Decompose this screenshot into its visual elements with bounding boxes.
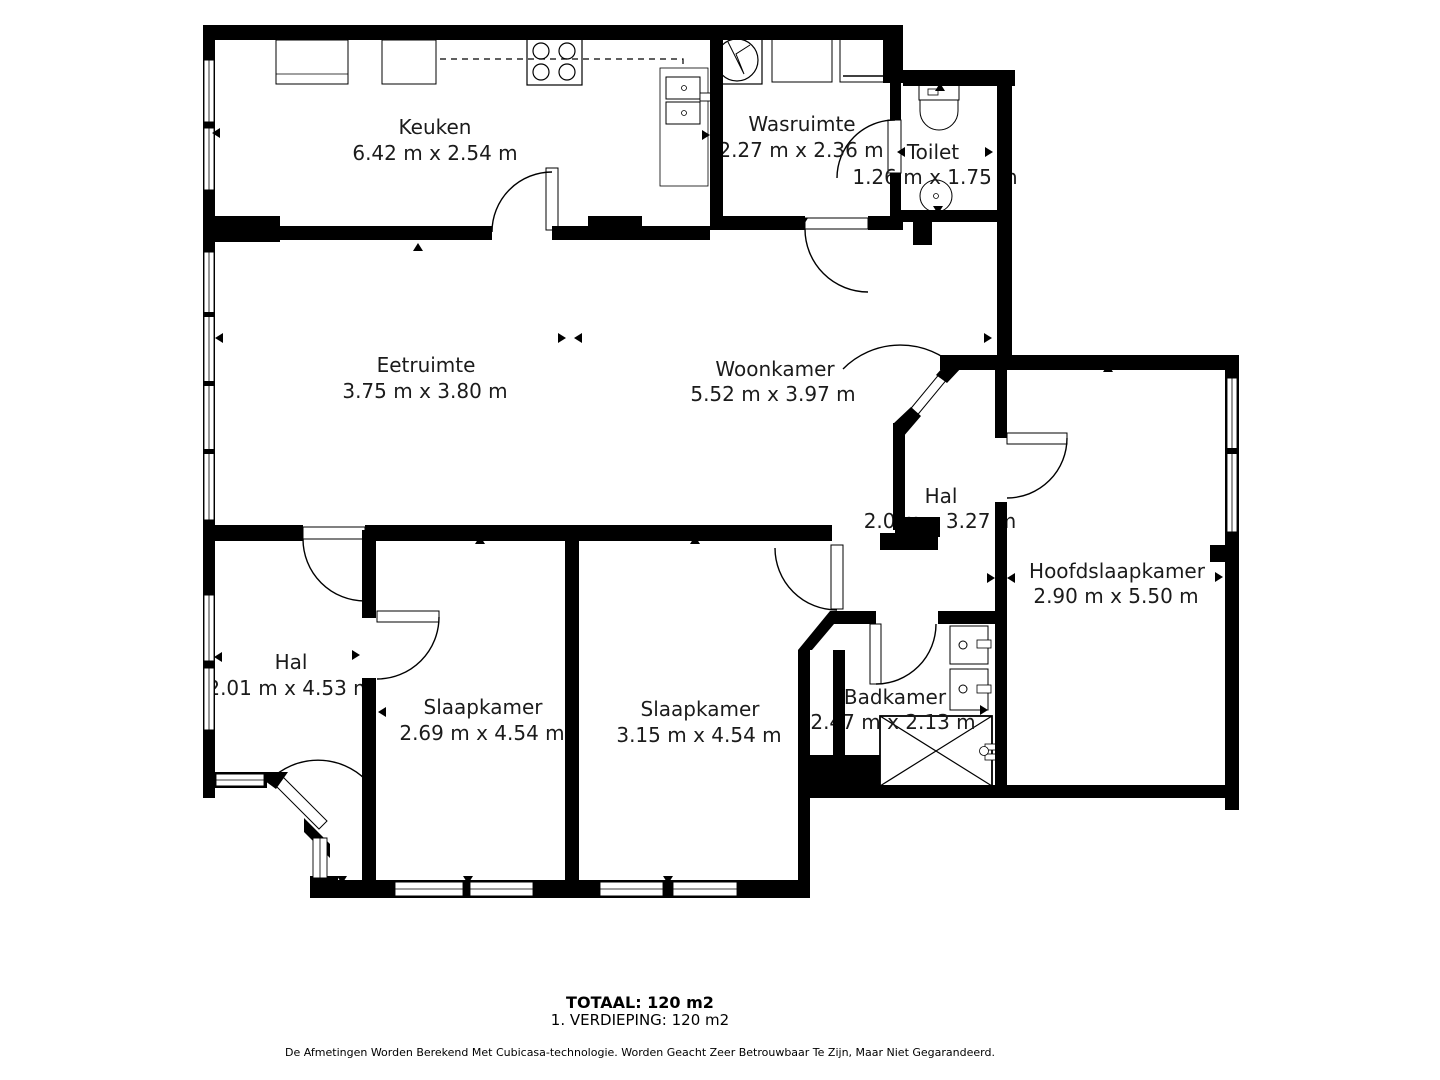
toilet-bowl <box>920 100 958 130</box>
footer: TOTAAL: 120 m2 1. VERDIEPING: 120 m2 De … <box>0 994 1280 1059</box>
stove-icon <box>527 37 582 85</box>
burner <box>559 64 575 80</box>
room-dims-slaapkamer-1: 2.69 m x 4.54 m <box>399 721 564 745</box>
shower-knob <box>980 747 989 756</box>
total-area-label: TOTAAL: 120 m2 <box>0 994 1280 1011</box>
cabinet <box>382 40 436 84</box>
room-dims-eetruimte: 3.75 m x 3.80 m <box>342 379 507 403</box>
room-label-toilet: Toilet <box>906 140 959 164</box>
room-label-hoofdslaapkamer: Hoofdslaapkamer <box>1029 559 1206 583</box>
room-dims-hal-onder: 2.01 m x 4.53 m <box>207 676 372 700</box>
room-label-keuken: Keuken <box>399 115 472 139</box>
burner <box>559 43 575 59</box>
faucet <box>977 685 991 693</box>
appliance <box>840 35 890 82</box>
room-dims-wasruimte: 2.27 m x 2.36 m <box>718 138 883 162</box>
floor-area-label: 1. VERDIEPING: 120 m2 <box>0 1012 1280 1029</box>
floor-plan-page: Keuken 6.42 m x 2.54 m Wasruimte 2.27 m … <box>0 0 1440 1080</box>
faucet <box>977 640 991 648</box>
burner <box>533 64 549 80</box>
toilet-icon <box>919 85 959 130</box>
floor-plan-svg: Keuken 6.42 m x 2.54 m Wasruimte 2.27 m … <box>0 0 1440 1080</box>
room-label-badkamer: Badkamer <box>844 685 947 709</box>
room-dims-woonkamer: 5.52 m x 3.97 m <box>690 382 855 406</box>
sink-drain <box>959 641 967 649</box>
room-label-eetruimte: Eetruimte <box>377 353 476 377</box>
room-label-hal-boven: Hal <box>925 484 958 508</box>
room-dims-keuken: 6.42 m x 2.54 m <box>352 141 517 165</box>
kitchen-cabinets-icon <box>276 40 436 84</box>
burner <box>533 43 549 59</box>
room-dims-toilet: 1.26 m x 1.75 m <box>852 165 1017 189</box>
faucet <box>682 111 687 116</box>
room-dims-hoofdslaapkamer: 2.90 m x 5.50 m <box>1033 584 1198 608</box>
sink-drain <box>959 685 967 693</box>
sink-drain <box>934 194 939 199</box>
room-label-woonkamer: Woonkamer <box>715 357 835 381</box>
room-label-wasruimte: Wasruimte <box>748 112 855 136</box>
appliance <box>772 35 832 82</box>
cabinet <box>276 40 348 84</box>
room-dims-slaapkamer-2: 3.15 m x 4.54 m <box>616 723 781 747</box>
room-label-slaapkamer-2: Slaapkamer <box>641 697 761 721</box>
room-label-hal-onder: Hal <box>275 650 308 674</box>
appliance-icons <box>772 35 890 82</box>
kitchen-sink-icon <box>660 68 714 186</box>
disclaimer-text: De Afmetingen Worden Berekend Met Cubica… <box>0 1046 1280 1059</box>
faucet <box>682 86 687 91</box>
bathroom-sink-icons <box>950 626 991 710</box>
room-label-slaapkamer-1: Slaapkamer <box>424 695 544 719</box>
